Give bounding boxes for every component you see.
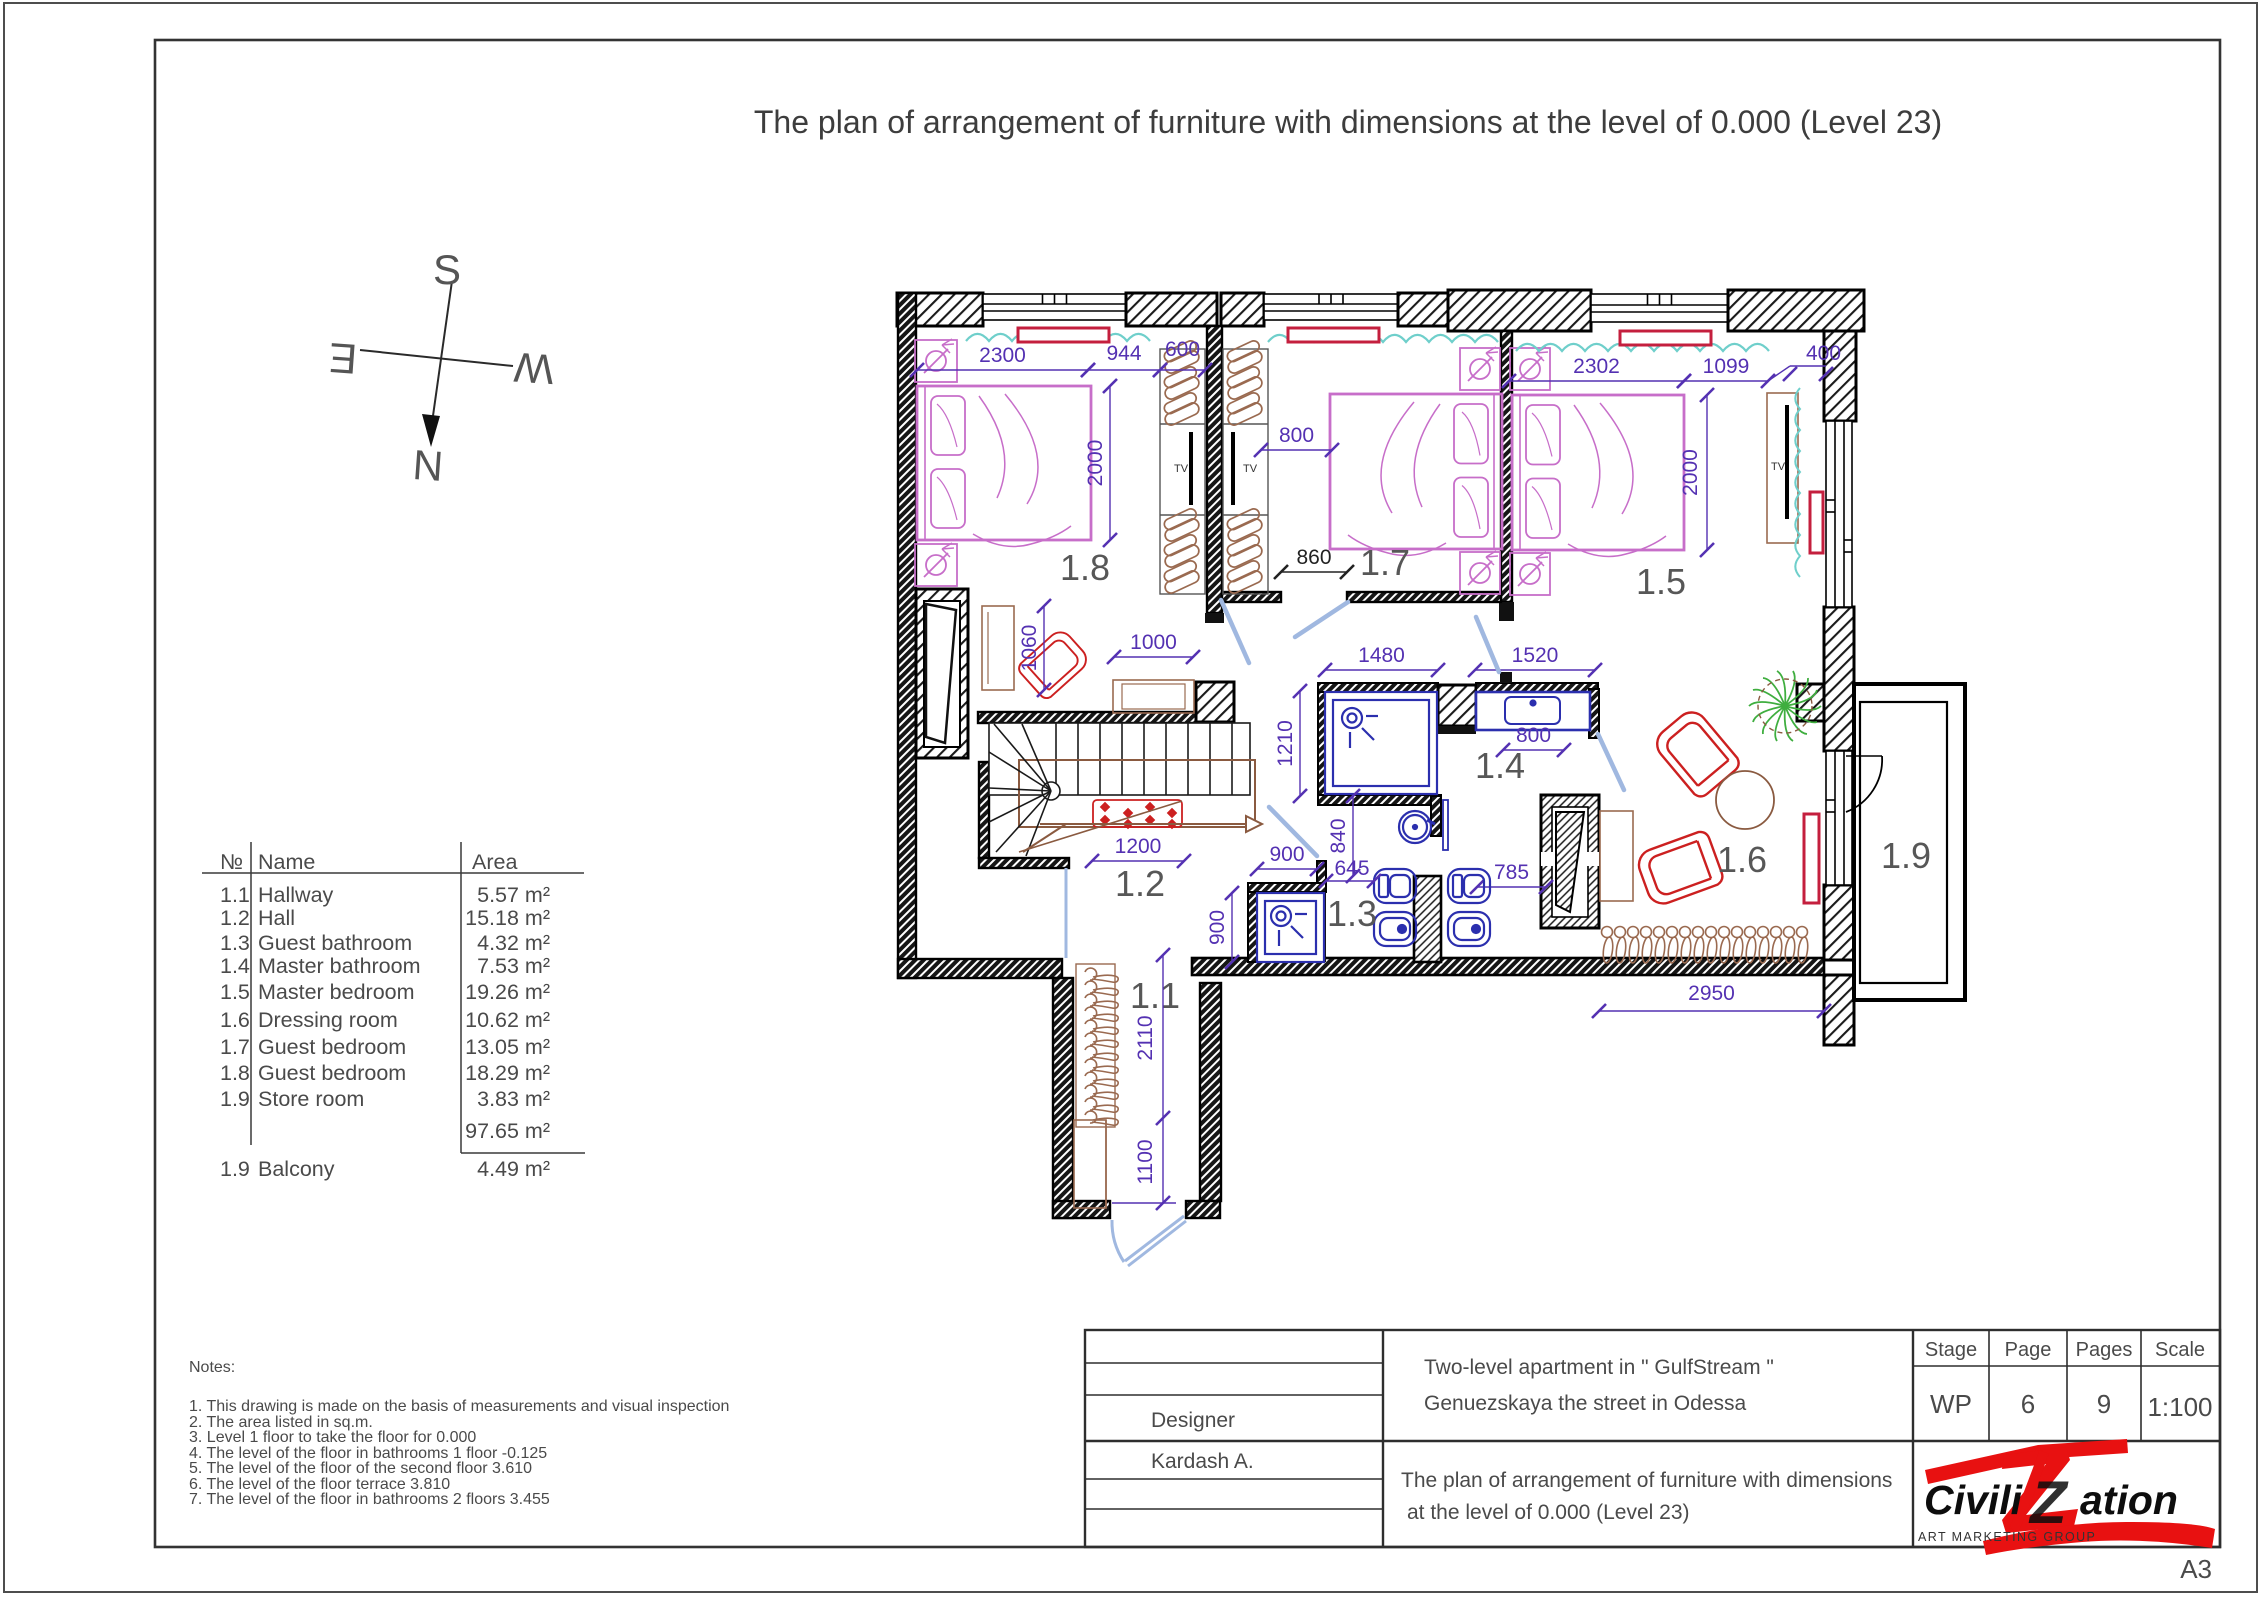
svg-text:2300: 2300	[979, 344, 1026, 367]
svg-text:840: 840	[1327, 818, 1350, 853]
svg-text:1.4: 1.4	[220, 954, 250, 978]
svg-text:13.05 m²: 13.05 m²	[465, 1035, 550, 1059]
svg-text:A3: A3	[2180, 1554, 2212, 1584]
svg-text:1210: 1210	[1274, 720, 1297, 767]
svg-text:1520: 1520	[1512, 644, 1559, 667]
svg-text:2000: 2000	[1679, 449, 1702, 496]
svg-text:944: 944	[1106, 342, 1141, 365]
svg-text:15.18 m²: 15.18 m²	[465, 906, 550, 930]
svg-text:1.2: 1.2	[220, 906, 250, 930]
svg-text:1.5: 1.5	[220, 980, 250, 1004]
svg-text:W: W	[512, 344, 555, 394]
svg-text:5. The level of the floor of t: 5. The level of the floor of the second …	[189, 1460, 532, 1477]
svg-text:600: 600	[1165, 338, 1200, 361]
svg-text:Balcony: Balcony	[258, 1157, 335, 1181]
svg-text:5.57 m²: 5.57 m²	[477, 883, 550, 907]
svg-text:TV: TV	[1771, 461, 1786, 473]
svg-text:1200: 1200	[1115, 835, 1162, 858]
svg-text:1.8: 1.8	[1060, 547, 1110, 588]
svg-text:6: 6	[2021, 1389, 2035, 1419]
svg-text:1.6: 1.6	[1717, 839, 1767, 880]
svg-text:Designer: Designer	[1151, 1409, 1235, 1432]
svg-text:9: 9	[2097, 1389, 2111, 1419]
svg-text:1.7: 1.7	[1360, 542, 1410, 583]
svg-text:Hallway: Hallway	[258, 883, 334, 907]
svg-text:1100: 1100	[1134, 1139, 1157, 1184]
svg-text:7.53 m²: 7.53 m²	[477, 954, 550, 978]
svg-text:1060: 1060	[1018, 625, 1041, 672]
svg-text:Page: Page	[2005, 1339, 2052, 1361]
svg-text:3. Level 1 floor to take the f: 3. Level 1 floor to take the floor for 0…	[189, 1429, 476, 1446]
svg-text:1.4: 1.4	[1475, 745, 1525, 786]
svg-text:1099: 1099	[1703, 355, 1750, 378]
svg-text:Stage: Stage	[1925, 1339, 1977, 1361]
svg-text:10.62 m²: 10.62 m²	[465, 1008, 550, 1032]
svg-text:The plan of arrangement of fur: The plan of arrangement of furniture wit…	[754, 104, 1942, 140]
svg-text:7. The level of the floor in b: 7. The level of the floor in bathrooms 2…	[189, 1491, 550, 1508]
svg-text:Guest bedroom: Guest bedroom	[258, 1061, 406, 1085]
svg-text:1.1: 1.1	[220, 883, 250, 907]
svg-text:ART MARKETING GROUP: ART MARKETING GROUP	[1918, 1530, 2096, 1544]
svg-text:Notes:: Notes:	[189, 1359, 235, 1376]
svg-text:E: E	[327, 334, 358, 383]
svg-text:№: №	[220, 850, 243, 874]
svg-text:Hall: Hall	[258, 906, 295, 930]
svg-text:2110: 2110	[1134, 1015, 1157, 1060]
svg-text:1.9: 1.9	[220, 1157, 250, 1181]
svg-text:N: N	[411, 441, 445, 490]
svg-text:1480: 1480	[1358, 644, 1405, 667]
svg-text:900: 900	[1269, 843, 1304, 866]
svg-text:Genuezskaya the street in Odes: Genuezskaya the street in Odessa	[1424, 1392, 1746, 1415]
svg-text:ation: ation	[2080, 1477, 2178, 1523]
svg-text:4.49 m²: 4.49 m²	[477, 1157, 550, 1181]
svg-text:Z: Z	[2028, 1469, 2069, 1536]
svg-text:1.5: 1.5	[1636, 561, 1686, 602]
svg-text:at the level of 0.000 (Level 2: at the level of 0.000 (Level 23)	[1407, 1501, 1690, 1524]
svg-text:785: 785	[1494, 861, 1529, 884]
svg-text:Pages: Pages	[2076, 1339, 2133, 1361]
svg-text:Guest bedroom: Guest bedroom	[258, 1035, 406, 1059]
svg-text:Two-level apartment in " GulfS: Two-level apartment in " GulfStream "	[1424, 1356, 1774, 1379]
svg-text:2000: 2000	[1084, 440, 1107, 487]
svg-text:Master bathroom: Master bathroom	[258, 954, 421, 978]
svg-text:645: 645	[1334, 857, 1369, 880]
svg-text:Civili: Civili	[1924, 1477, 2024, 1523]
svg-text:4.32 m²: 4.32 m²	[477, 931, 550, 955]
svg-text:1.9: 1.9	[1881, 835, 1931, 876]
svg-text:1.3: 1.3	[1327, 893, 1377, 934]
svg-text:97.65 m²: 97.65 m²	[465, 1119, 550, 1143]
svg-text:TV: TV	[1174, 463, 1189, 475]
svg-text:Kardash A.: Kardash A.	[1151, 1450, 1254, 1473]
svg-text:Master bedroom: Master bedroom	[258, 980, 415, 1004]
svg-text:1. This drawing is made on the: 1. This drawing is made on the basis of …	[189, 1398, 729, 1415]
svg-text:1:100: 1:100	[2147, 1392, 2212, 1422]
svg-text:900: 900	[1206, 910, 1229, 945]
svg-text:2950: 2950	[1688, 982, 1735, 1005]
svg-text:2302: 2302	[1573, 355, 1620, 378]
svg-text:1.1: 1.1	[1130, 975, 1180, 1016]
svg-text:Name: Name	[258, 850, 315, 874]
svg-text:19.26 m²: 19.26 m²	[465, 980, 550, 1004]
svg-text:1.3: 1.3	[220, 931, 250, 955]
svg-text:1000: 1000	[1130, 631, 1177, 654]
svg-text:1.7: 1.7	[220, 1035, 250, 1059]
svg-text:Scale: Scale	[2155, 1339, 2205, 1361]
svg-text:18.29 m²: 18.29 m²	[465, 1061, 550, 1085]
svg-text:TV: TV	[1243, 463, 1258, 475]
svg-text:Area: Area	[472, 850, 517, 874]
svg-text:1.6: 1.6	[220, 1008, 250, 1032]
svg-text:860: 860	[1296, 546, 1331, 569]
svg-text:1.8: 1.8	[220, 1061, 250, 1085]
svg-text:WP: WP	[1930, 1389, 1972, 1419]
svg-text:3.83 m²: 3.83 m²	[477, 1087, 550, 1111]
svg-text:S: S	[433, 246, 461, 293]
svg-text:1.9: 1.9	[220, 1087, 250, 1111]
svg-text:400: 400	[1806, 342, 1841, 365]
svg-text:800: 800	[1279, 424, 1314, 447]
svg-text:1.2: 1.2	[1115, 863, 1165, 904]
svg-text:Dressing room: Dressing room	[258, 1008, 398, 1032]
svg-text:The plan of arrangement of fur: The plan of arrangement of furniture wit…	[1401, 1469, 1892, 1492]
svg-text:Guest bathroom: Guest bathroom	[258, 931, 412, 955]
svg-text:800: 800	[1516, 724, 1551, 747]
svg-text:Store room: Store room	[258, 1087, 364, 1111]
